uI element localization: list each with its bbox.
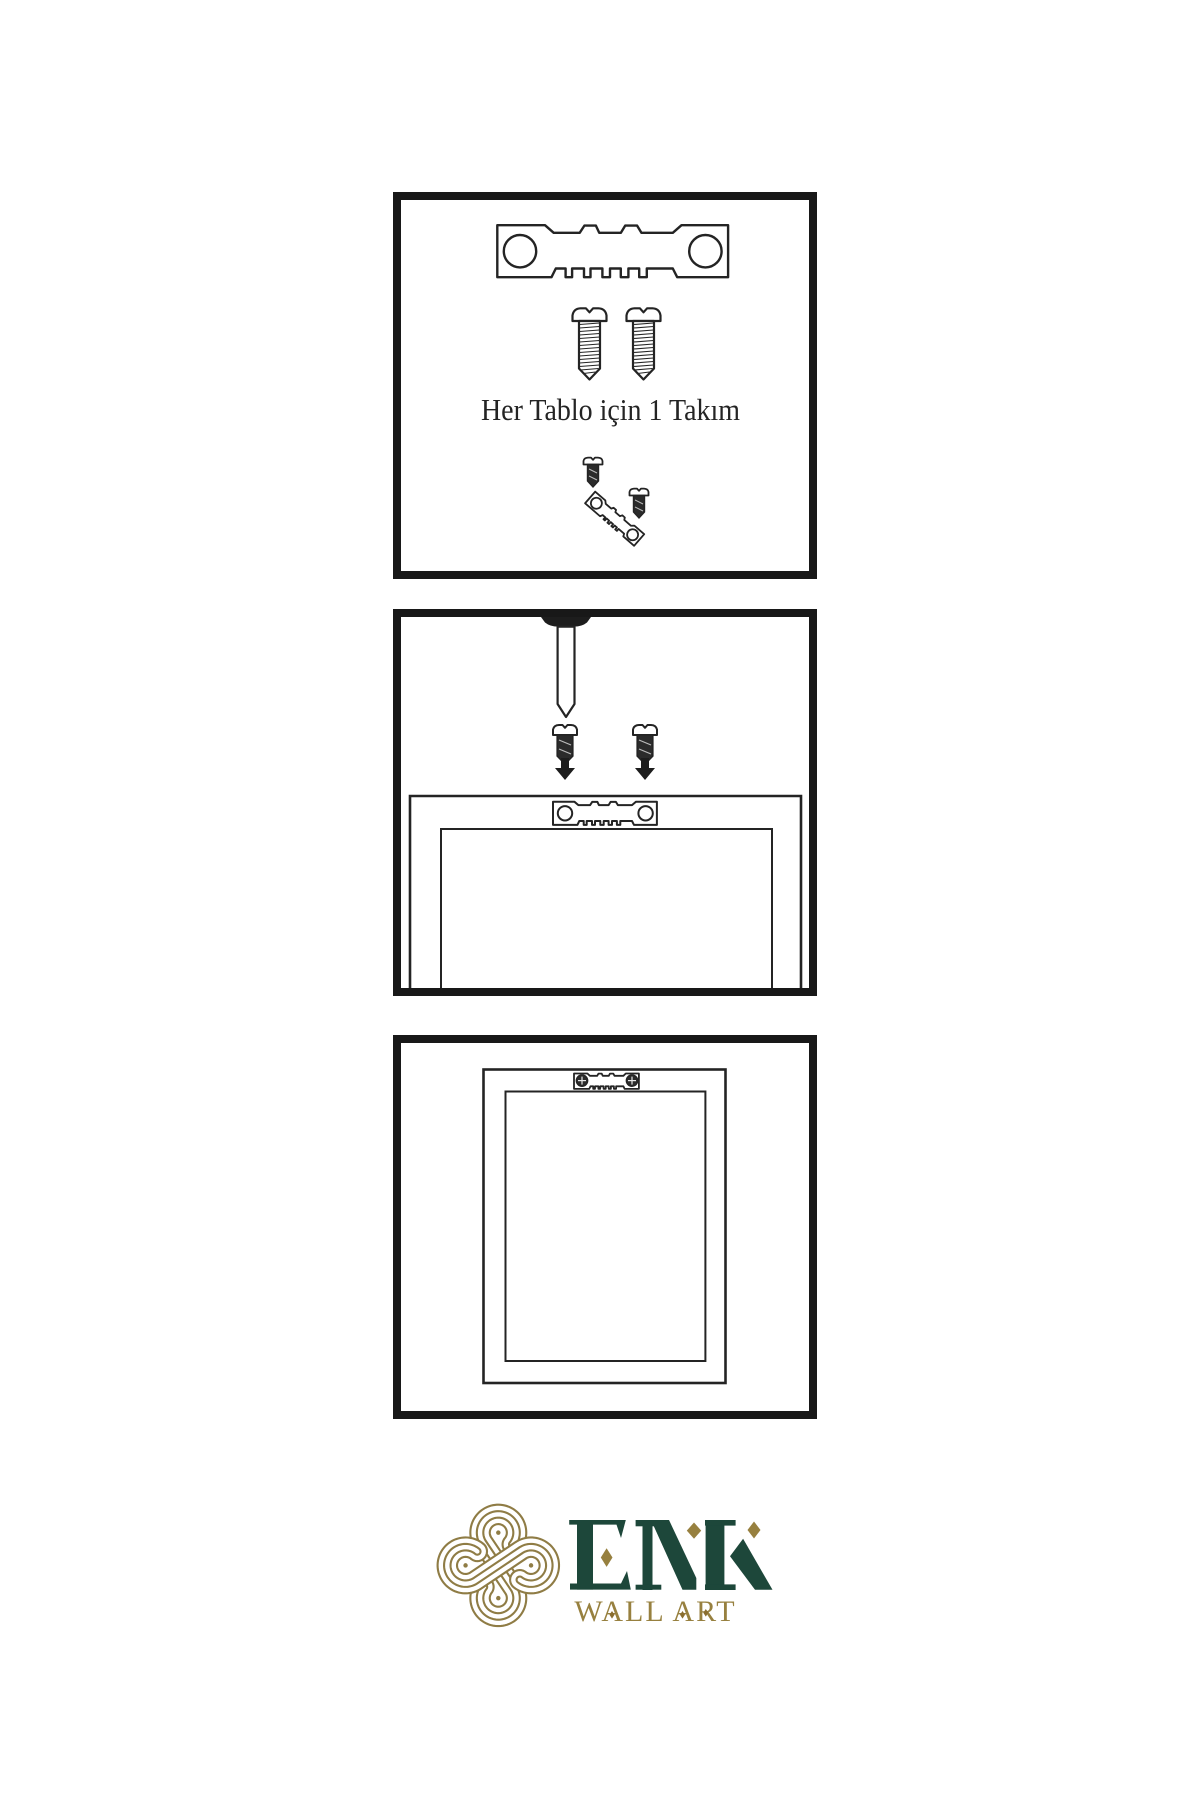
svg-text:WALL ART: WALL ART (574, 1595, 736, 1628)
svg-text:Her Tablo için 1 Takım: Her Tablo için 1 Takım (481, 392, 740, 427)
